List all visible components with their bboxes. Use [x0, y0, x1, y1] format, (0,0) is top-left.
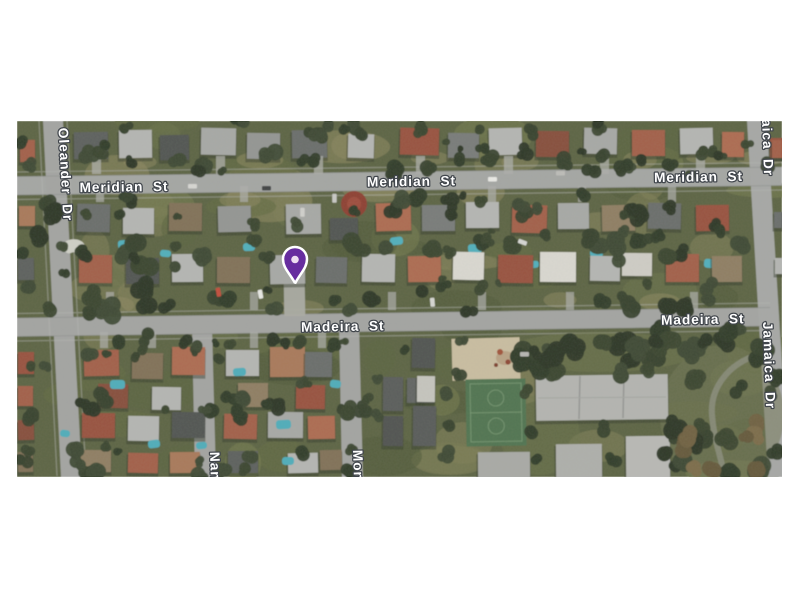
svg-text:Meridian St: Meridian St	[79, 179, 168, 195]
svg-text:Jamaica Dr: Jamaica Dr	[760, 322, 778, 410]
svg-text:Madeira St: Madeira St	[301, 318, 385, 334]
svg-text:Meridian St: Meridian St	[367, 173, 456, 189]
svg-text:Madeira St: Madeira St	[661, 311, 745, 327]
svg-text:Meridian St: Meridian St	[654, 169, 743, 185]
